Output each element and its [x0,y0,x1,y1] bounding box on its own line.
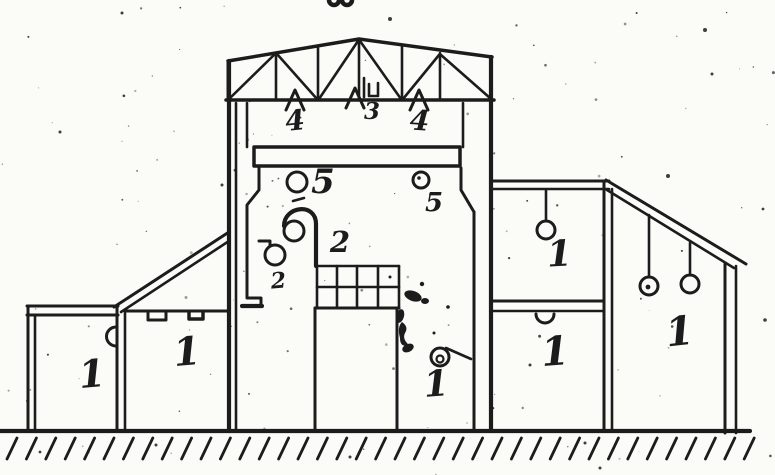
right-annex [491,180,746,433]
slope-roof-top [606,180,746,264]
left-pilaster [247,167,261,305]
label-1-right-upper: 1 [546,232,573,275]
label-1-right-lower: 1 [540,327,571,376]
scanned-drawing-page: 4 3 4 5 5 2 2 1 1 1 1 1 1 [0,0,775,475]
label-5-right: 5 [425,188,443,218]
central-bay [229,57,491,431]
crane-hook-lamps [259,198,316,266]
tilde-mark [293,198,304,201]
building-cross-section-drawing: 4 3 4 5 5 2 2 1 1 1 1 1 1 [0,0,775,475]
ground-hatching [7,438,754,459]
lamp-circle [681,275,699,293]
lamp-circle [265,245,285,265]
label-2-right: 2 [329,225,350,259]
crane-level-lamps [287,172,429,192]
label-2-left: 2 [269,267,288,294]
crane-beam [254,147,460,166]
label-5-left: 5 [311,162,335,202]
slope-roof-bottom [607,190,734,268]
lamp-circle [413,172,429,188]
lamp-bracket [259,241,270,245]
right-corbel [461,168,474,212]
ridge-bracket-mark [369,83,378,96]
furnace-checkerwork [315,266,399,430]
label-1-annex-outer: 1 [77,350,107,397]
label-3: 3 [364,98,380,125]
lamp-circle [284,221,304,241]
label-1-bay: 1 [422,362,450,406]
cropped-top-mark [329,0,352,5]
ground [0,431,754,459]
roof-truss [226,39,494,100]
slope-roof-bottom [121,241,229,312]
slope-roof-top [114,232,229,307]
left-annex [27,232,229,431]
wall-lamp-half-circle [107,327,117,346]
label-1-far-right: 1 [663,307,696,357]
label-4-left: 4 [284,103,307,138]
ceiling-fixture [148,312,166,320]
ceiling-dome-lamp [536,314,554,323]
label-1-annex-inner: 1 [171,328,202,376]
ceiling-fixture [189,312,203,319]
label-4-right: 4 [409,103,431,137]
lamp-circle [287,172,307,192]
